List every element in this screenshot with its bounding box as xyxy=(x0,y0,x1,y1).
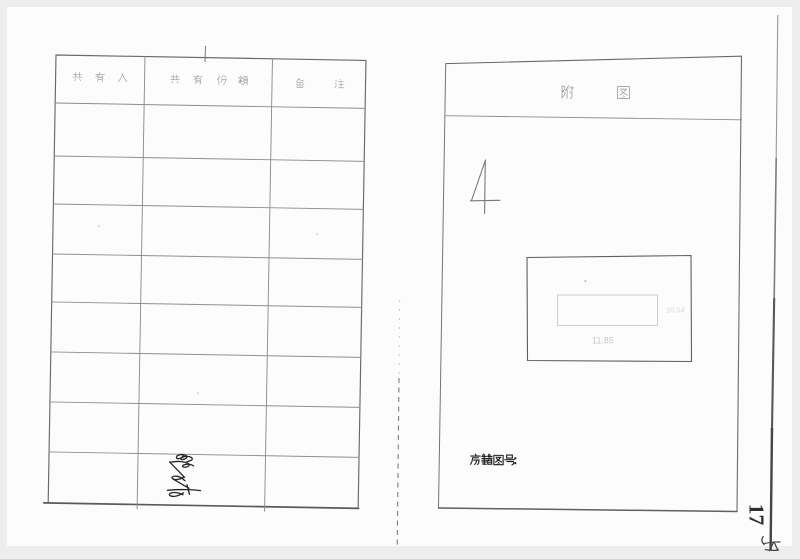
svg-text:17: 17 xyxy=(744,504,768,526)
svg-text:10.54: 10.54 xyxy=(666,306,685,315)
svg-text:11.85: 11.85 xyxy=(592,336,614,346)
